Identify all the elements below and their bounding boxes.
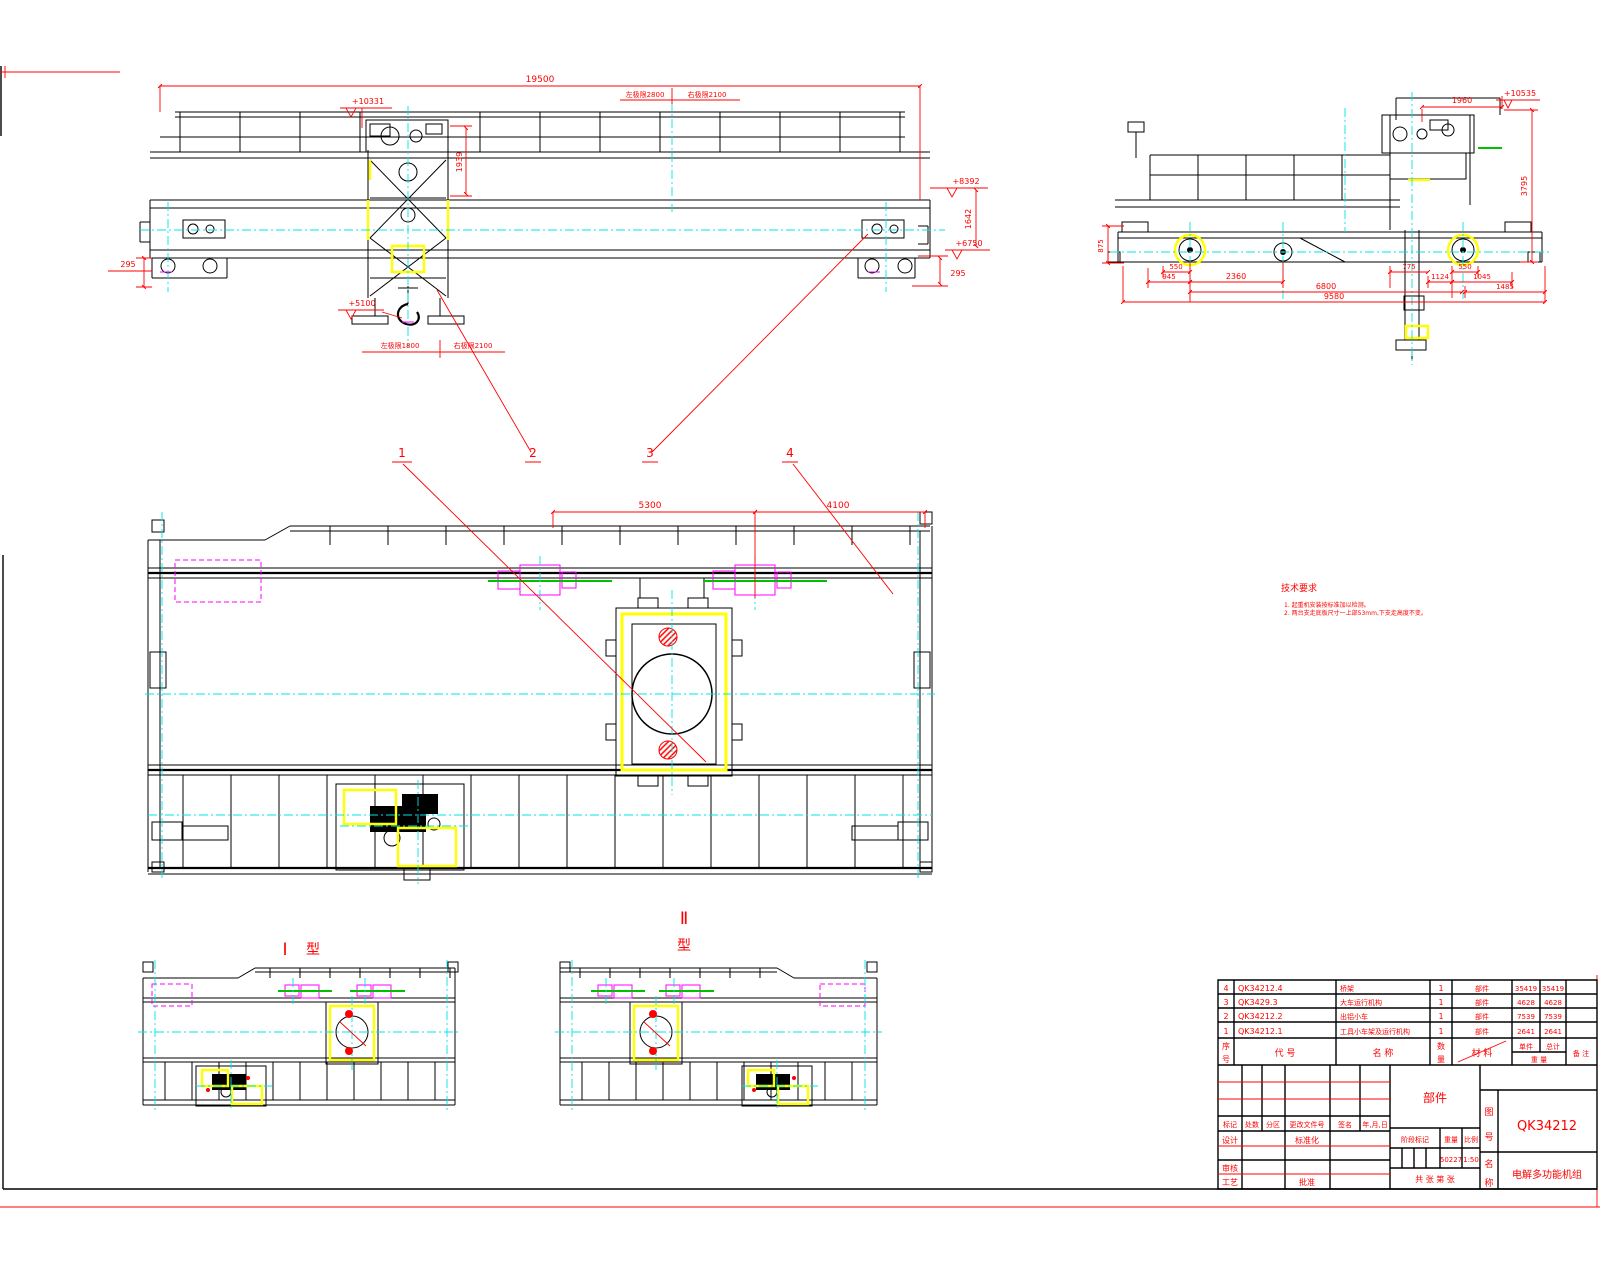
bom-header-weight: 重 量 bbox=[1531, 1056, 1547, 1064]
dim-wheel-right-label: 295 bbox=[950, 269, 965, 278]
dim-2360-label: 2360 bbox=[1226, 272, 1246, 281]
plan-view: 5300 4100 1 2 3 4 bbox=[145, 446, 935, 884]
bom-seq: 3 bbox=[1223, 998, 1228, 1007]
bom-header-qty-top: 数 bbox=[1437, 1041, 1445, 1051]
front-centerlines bbox=[140, 102, 945, 348]
bom-material: 部件 bbox=[1475, 1027, 1489, 1036]
bom-header-seq-top: 序 bbox=[1222, 1041, 1230, 1051]
role-design: 设计 bbox=[1222, 1135, 1238, 1145]
bom-material: 部件 bbox=[1475, 998, 1489, 1007]
bom-qty: 1 bbox=[1438, 1012, 1443, 1021]
dim-775-label: 775 bbox=[1402, 263, 1415, 271]
drawing-no-label-top: 图 bbox=[1484, 1107, 1493, 1118]
bom-row: 4 QK34212.4 桥架 1 部件 35419 35419 bbox=[1223, 984, 1564, 993]
bom-unit-weight: 7539 bbox=[1517, 1013, 1535, 1021]
bom-name: 工具小车架及运行机构 bbox=[1340, 1027, 1410, 1036]
dim-span-label: 19500 bbox=[526, 75, 555, 85]
wheel bbox=[865, 259, 879, 273]
bom-material: 部件 bbox=[1475, 1012, 1489, 1021]
role-approve: 批准 bbox=[1299, 1177, 1315, 1187]
bom-unit-weight: 2641 bbox=[1517, 1028, 1535, 1036]
bom-code: QK3429.3 bbox=[1238, 998, 1278, 1007]
bom-header-unit: 单件 bbox=[1519, 1042, 1533, 1051]
bom-name: 桥架 bbox=[1340, 984, 1354, 993]
type1-red-dot bbox=[345, 1047, 353, 1055]
part-type-label: 部件 bbox=[1423, 1090, 1447, 1105]
side-yellow-accents bbox=[1406, 180, 1430, 338]
plan-boxes bbox=[150, 512, 932, 880]
type2-red-dot bbox=[649, 1047, 657, 1055]
bom-row: 2 QK34212.2 出铝小车 1 部件 7539 7539 bbox=[1223, 1012, 1561, 1021]
hatched-hole-bottom bbox=[659, 741, 677, 759]
bom-unit-weight: 4628 bbox=[1517, 999, 1535, 1007]
role-process: 工艺 bbox=[1222, 1178, 1238, 1187]
hatched-hole-top bbox=[659, 628, 677, 646]
dim-5300-label: 5300 bbox=[639, 501, 662, 511]
name-label-top: 名 bbox=[1484, 1158, 1493, 1170]
bom-header-total: 总计 bbox=[1546, 1042, 1560, 1051]
front-rail-marks bbox=[160, 272, 880, 322]
dim-3795-label: 3795 bbox=[1520, 176, 1529, 196]
type2-centerlines bbox=[555, 960, 882, 1110]
trolley-yellow-frames bbox=[344, 790, 456, 866]
bom-seq: 1 bbox=[1223, 1027, 1228, 1036]
elev-girder-label: +8392 bbox=[952, 177, 979, 186]
front-structure-lines bbox=[140, 112, 930, 316]
hoist-drum bbox=[410, 130, 422, 142]
rev-header-doc-no: 更改文件号 bbox=[1290, 1120, 1325, 1129]
bom-qty: 1 bbox=[1438, 984, 1443, 993]
type-two-view: Ⅱ 型 bbox=[555, 909, 882, 1110]
type1-numeral-label: Ⅰ bbox=[282, 940, 287, 960]
bom-header-seq-bottom: 号 bbox=[1222, 1055, 1230, 1064]
weight-value: 50227 bbox=[1440, 1156, 1462, 1164]
name-label-bottom: 称 bbox=[1484, 1177, 1493, 1189]
dim-trolley-height-label: 1939 bbox=[455, 152, 464, 172]
limit-hook-right-label: 右极限2100 bbox=[454, 341, 493, 350]
bom-code: QK34212.4 bbox=[1238, 984, 1283, 993]
side-elevation-view: 1960 +10535 3795 875 550 775 550 945 236… bbox=[1097, 89, 1552, 365]
bom-name: 大车运行机构 bbox=[1340, 998, 1382, 1007]
side-centerlines bbox=[1110, 92, 1552, 365]
type2-numeral-label: Ⅱ bbox=[680, 909, 688, 929]
dim-1045-label: 1045 bbox=[1473, 273, 1491, 281]
motor-circle bbox=[872, 224, 882, 234]
wheel bbox=[898, 259, 912, 273]
product-name: 电解多功能机组 bbox=[1512, 1168, 1582, 1181]
bom-header-code: 代 号 bbox=[1275, 1048, 1296, 1059]
type2-suffix-label: 型 bbox=[677, 938, 691, 954]
bom-seq: 2 bbox=[1223, 1012, 1228, 1021]
sheet-label: 共 张 第 张 bbox=[1415, 1174, 1455, 1184]
front-elevation-view: 19500 +10331 1939 左极限2800 右极限2100 +8392 … bbox=[108, 75, 990, 452]
rev-header-date: 年,月,日 bbox=[1362, 1120, 1387, 1129]
title-block: 4 QK34212.4 桥架 1 部件 35419 35419 3 QK3429… bbox=[1218, 980, 1597, 1189]
rev-header-sign: 签名 bbox=[1338, 1120, 1352, 1129]
limit-hook-left-label: 左极限1800 bbox=[381, 341, 420, 350]
scale-label: 比例 bbox=[1464, 1135, 1478, 1144]
type2-red-dot bbox=[752, 1088, 756, 1092]
bom-name: 出铝小车 bbox=[1340, 1012, 1368, 1021]
weight-label: 重量 bbox=[1444, 1136, 1458, 1144]
dim-550l-label: 550 bbox=[1169, 263, 1182, 271]
type1-red-dot bbox=[345, 1010, 353, 1018]
type1-suffix-label: 型 bbox=[306, 942, 320, 958]
motor-circle bbox=[206, 225, 214, 233]
type2-red-dot bbox=[792, 1076, 796, 1080]
bom-total-weight: 7539 bbox=[1544, 1013, 1562, 1021]
plan-thick-lines bbox=[148, 573, 932, 868]
bom-seq: 4 bbox=[1223, 984, 1228, 993]
elev-rail-label: +6750 bbox=[955, 239, 982, 248]
bom-code: QK34212.2 bbox=[1238, 1012, 1283, 1021]
callout-3: 3 bbox=[646, 446, 654, 460]
bom-total-weight: 2641 bbox=[1544, 1028, 1562, 1036]
front-boxes bbox=[183, 120, 904, 324]
bom-material: 部件 bbox=[1475, 984, 1489, 993]
technical-notes: 技术要求 1. 起重机安装按标准加以检测。 2. 两台支走底板尺寸一上部53mm… bbox=[1281, 582, 1427, 617]
limit-top-right-label: 右极限2100 bbox=[688, 90, 727, 99]
role-check: 审核 bbox=[1222, 1163, 1238, 1173]
drawing-number: QK34212 bbox=[1517, 1119, 1577, 1134]
bom-qty: 1 bbox=[1438, 998, 1443, 1007]
side-structure-lines bbox=[1115, 98, 1542, 360]
notes-title: 技术要求 bbox=[1281, 582, 1317, 594]
dim-1124-label: 1124 bbox=[1431, 273, 1449, 281]
bom-unit-weight: 35419 bbox=[1515, 985, 1537, 993]
cad-drawing-page: 19500 +10331 1939 左极限2800 右极限2100 +8392 … bbox=[0, 0, 1600, 1280]
bom-row: 3 QK3429.3 大车运行机构 1 部件 4628 4628 bbox=[1223, 998, 1561, 1007]
elev-hook-label: +5100 bbox=[348, 299, 375, 308]
elev-10535-label: +10535 bbox=[1504, 89, 1536, 98]
machinery-circle bbox=[1393, 127, 1407, 141]
callout-1: 1 bbox=[398, 446, 406, 460]
role-standardization: 标准化 bbox=[1295, 1135, 1319, 1145]
bom-code: QK34212.1 bbox=[1238, 1027, 1283, 1036]
titleblock-red-lines bbox=[1218, 1041, 1506, 1174]
type1-dashed-magenta-box bbox=[152, 984, 192, 1006]
type1-red-dot bbox=[206, 1088, 210, 1092]
limit-top-left-label: 左极限2800 bbox=[626, 90, 665, 99]
type1-red-dot bbox=[246, 1076, 250, 1080]
bom-row: 1 QK34212.1 工具小车架及运行机构 1 部件 2641 2641 bbox=[1223, 1027, 1561, 1036]
dim-6800-label: 6800 bbox=[1316, 282, 1336, 291]
bom-header-name: 名 称 bbox=[1373, 1047, 1394, 1059]
type-one-view: Ⅰ 型 bbox=[138, 940, 460, 1110]
plan-dashed-magenta-box bbox=[175, 560, 261, 602]
bom-total-weight: 35419 bbox=[1542, 985, 1564, 993]
rev-header-count: 处数 bbox=[1245, 1120, 1259, 1129]
bom-qty: 1 bbox=[1438, 1027, 1443, 1036]
type2-dashed-magenta-box bbox=[820, 984, 865, 1006]
bom-total-weight: 4628 bbox=[1544, 999, 1562, 1007]
motor-circle bbox=[188, 224, 198, 234]
side-red-annotation-lines bbox=[1102, 96, 1545, 302]
machinery-circle bbox=[1417, 129, 1427, 139]
dim-945-label: 945 bbox=[1162, 273, 1175, 281]
drawing-no-label-bottom: 号 bbox=[1484, 1132, 1493, 1143]
type2-red-dot bbox=[649, 1010, 657, 1018]
scale-value: 1:50 bbox=[1463, 1156, 1479, 1164]
elev-trolley-label: +10331 bbox=[352, 97, 384, 106]
type1-centerlines bbox=[138, 960, 460, 1110]
notes-item-2: 2. 两台支走底板尺寸一上部53mm,下支走高度不变。 bbox=[1284, 609, 1427, 617]
callout-4: 4 bbox=[786, 446, 794, 460]
bom-header-material: 材 料 bbox=[1472, 1047, 1493, 1059]
dim-1485-label: 1485 bbox=[1496, 283, 1514, 291]
revision-table: 标记 处数 分区 更改文件号 签名 年,月,日 设计 标准化 审核 工艺 批准 bbox=[1222, 1120, 1388, 1187]
dim-9580-label: 9580 bbox=[1324, 292, 1344, 301]
stage-label: 阶段标记 bbox=[1401, 1135, 1429, 1144]
dim-1960-label: 1960 bbox=[1452, 96, 1472, 105]
dim-550r-label: 550 bbox=[1458, 263, 1471, 271]
rev-header-mark: 标记 bbox=[1223, 1120, 1237, 1129]
type2-structure-lines bbox=[560, 968, 877, 1105]
drawing-canvas: 19500 +10331 1939 左极限2800 右极限2100 +8392 … bbox=[0, 0, 1600, 1280]
motor-circle bbox=[890, 225, 898, 233]
callout-2: 2 bbox=[529, 446, 537, 460]
rev-header-zone: 分区 bbox=[1266, 1120, 1280, 1129]
dim-wheel-left-label: 295 bbox=[120, 260, 135, 269]
dim-girder-end-label: 1642 bbox=[964, 209, 973, 229]
wheel bbox=[203, 259, 217, 273]
dim-4100-label: 4100 bbox=[827, 501, 850, 511]
dim-875-label: 875 bbox=[1097, 239, 1105, 252]
side-wheels bbox=[1175, 124, 1478, 265]
title-area: 部件 阶段标记 重量 比例 50227 1:50 共 张 第 张 图 号 QK3… bbox=[1401, 1090, 1582, 1189]
front-dimension-lines bbox=[144, 86, 976, 287]
bom-header-remark: 备 注 bbox=[1573, 1049, 1589, 1058]
notes-item-1: 1. 起重机安装按标准加以检测。 bbox=[1284, 601, 1370, 609]
bom-header-qty-bottom: 量 bbox=[1437, 1055, 1445, 1064]
